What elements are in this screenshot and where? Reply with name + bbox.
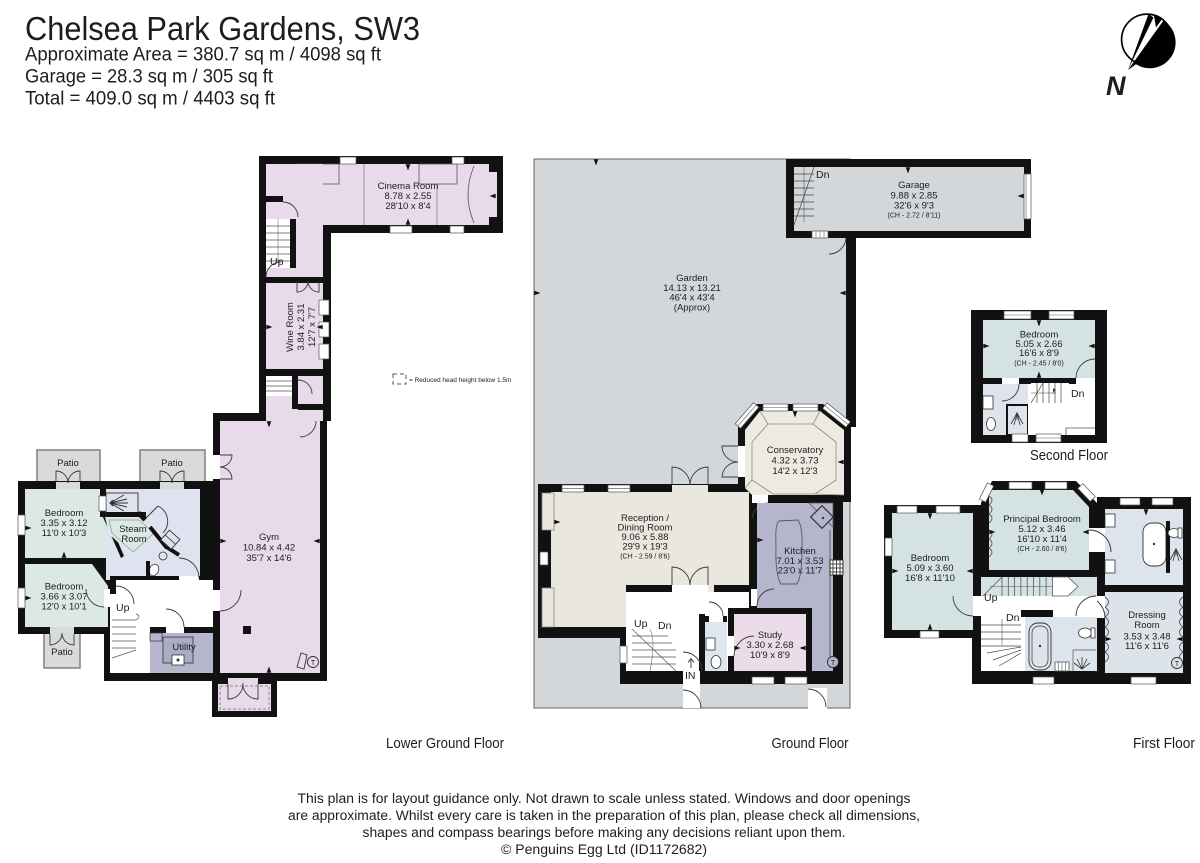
svg-text:T: T <box>311 660 316 667</box>
svg-text:Dn: Dn <box>658 620 672 632</box>
svg-text:12'0 x 10'1: 12'0 x 10'1 <box>41 602 86 613</box>
svg-text:(Approx): (Approx) <box>674 303 710 314</box>
svg-text:Conservatory: Conservatory <box>767 445 824 456</box>
svg-text:© Penguins Egg Ltd (ID1172682): © Penguins Egg Ltd (ID1172682) <box>501 842 707 857</box>
svg-text:Garage: Garage <box>898 180 930 191</box>
svg-text:T: T <box>1175 661 1180 668</box>
svg-text:29'9 x 19'3: 29'9 x 19'3 <box>622 542 667 553</box>
svg-text:(CH - 2.45 / 8'0): (CH - 2.45 / 8'0) <box>1014 361 1064 368</box>
svg-text:Patio: Patio <box>161 458 183 469</box>
svg-text:Lower Ground Floor: Lower Ground Floor <box>386 736 504 752</box>
svg-text:16'8 x 11'10: 16'8 x 11'10 <box>905 573 955 584</box>
svg-text:Room: Room <box>121 534 146 545</box>
svg-text:Garage = 28.3 sq m / 305 sq ft: Garage = 28.3 sq m / 305 sq ft <box>25 67 274 88</box>
svg-text:Utility: Utility <box>172 642 195 653</box>
svg-text:Dn: Dn <box>1071 388 1085 400</box>
svg-text:Dn: Dn <box>816 169 830 181</box>
svg-text:16'10 x 11'4: 16'10 x 11'4 <box>1017 534 1067 545</box>
svg-text:14'2 x 12'3: 14'2 x 12'3 <box>772 466 817 477</box>
svg-text:10'9 x 8'9: 10'9 x 8'9 <box>750 650 790 661</box>
svg-text:Patio: Patio <box>51 647 73 658</box>
svg-text:10.84 x 4.42: 10.84 x 4.42 <box>243 543 295 554</box>
svg-text:IN: IN <box>685 670 696 682</box>
svg-text:Chelsea Park Gardens, SW3: Chelsea Park Gardens, SW3 <box>25 11 420 48</box>
svg-text:N: N <box>1106 71 1126 101</box>
svg-text:4.32 x 3.73: 4.32 x 3.73 <box>771 456 818 467</box>
svg-text:Approximate Area = 380.7 sq m: Approximate Area = 380.7 sq m / 4098 sq … <box>25 45 382 66</box>
svg-text:Patio: Patio <box>57 458 79 469</box>
svg-text:Up: Up <box>634 618 648 630</box>
svg-text:shapes and compass bearings be: shapes and compass bearings before makin… <box>363 825 846 840</box>
svg-text:3.84 x 2.31: 3.84 x 2.31 <box>296 303 307 350</box>
svg-text:12'7 x 7'7: 12'7 x 7'7 <box>307 307 318 347</box>
svg-text:Up: Up <box>116 602 130 614</box>
svg-text:(CH - 2.60 / 8'6): (CH - 2.60 / 8'6) <box>1017 546 1067 553</box>
svg-text:Gym: Gym <box>259 532 279 543</box>
svg-text:32'6 x 9'3: 32'6 x 9'3 <box>894 201 934 212</box>
svg-text:T: T <box>831 660 836 667</box>
svg-text:First Floor: First Floor <box>1133 736 1195 752</box>
svg-text:Up: Up <box>270 256 284 268</box>
svg-text:11'6 x 11'6: 11'6 x 11'6 <box>1125 641 1169 652</box>
svg-text:are approximate. Whilst every: are approximate. Whilst every care is ta… <box>288 808 920 823</box>
svg-text:This plan is for layout guidan: This plan is for layout guidance only. N… <box>298 791 911 806</box>
svg-text:(CH - 2.72 / 8'11): (CH - 2.72 / 8'11) <box>888 213 941 220</box>
svg-text:16'6 x 8'9: 16'6 x 8'9 <box>1019 348 1059 359</box>
svg-text:Ground Floor: Ground Floor <box>772 736 849 752</box>
svg-text:Up: Up <box>984 592 998 604</box>
svg-text:Room: Room <box>1134 620 1159 631</box>
svg-text:35'7 x 14'6: 35'7 x 14'6 <box>246 553 291 564</box>
svg-text:Dn: Dn <box>1006 612 1020 624</box>
svg-text:Total = 409.0 sq m / 4403 sq f: Total = 409.0 sq m / 4403 sq ft <box>25 89 276 110</box>
svg-text:= Reduced head height below 1.: = Reduced head height below 1.5m <box>409 377 511 384</box>
svg-text:Wine Room: Wine Room <box>285 302 296 352</box>
svg-text:28'10 x 8'4: 28'10 x 8'4 <box>385 201 430 212</box>
svg-text:11'0 x 10'3: 11'0 x 10'3 <box>42 528 87 539</box>
svg-text:Second Floor: Second Floor <box>1030 448 1108 464</box>
svg-text:(CH - 2.59 / 8'6): (CH - 2.59 / 8'6) <box>620 554 670 561</box>
